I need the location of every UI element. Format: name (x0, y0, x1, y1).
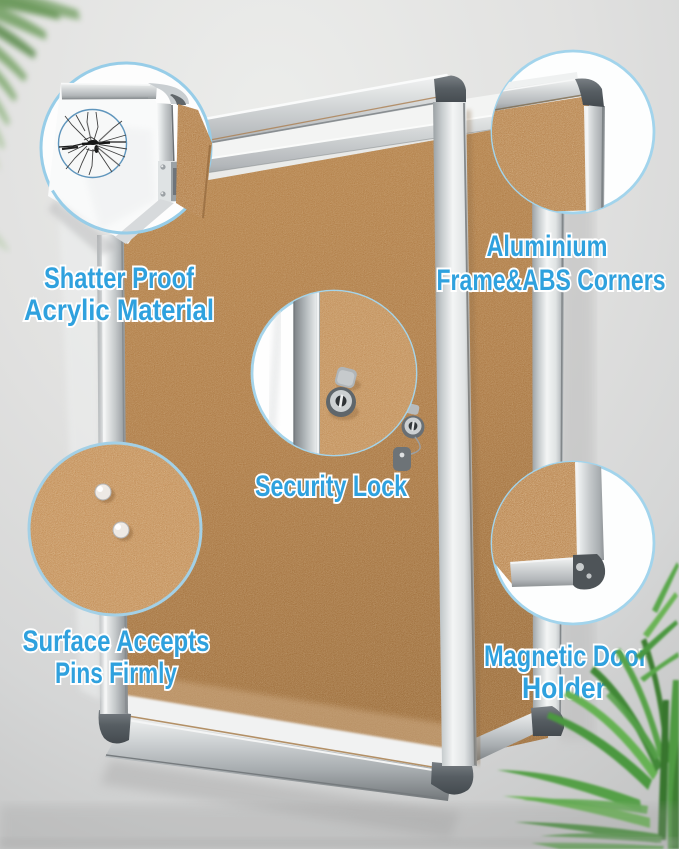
svg-text:Pins Firmly: Pins Firmly (55, 657, 177, 690)
svg-text:Surface Accepts: Surface Accepts (23, 625, 210, 658)
svg-text:Holder: Holder (522, 672, 606, 705)
svg-text:Frame&ABS Corners: Frame&ABS Corners (437, 264, 666, 297)
svg-text:Security Lock: Security Lock (255, 470, 407, 503)
svg-text:Acrylic Material: Acrylic Material (24, 294, 214, 327)
svg-text:Aluminium: Aluminium (487, 230, 608, 263)
svg-text:Shatter Proof: Shatter Proof (44, 262, 195, 295)
